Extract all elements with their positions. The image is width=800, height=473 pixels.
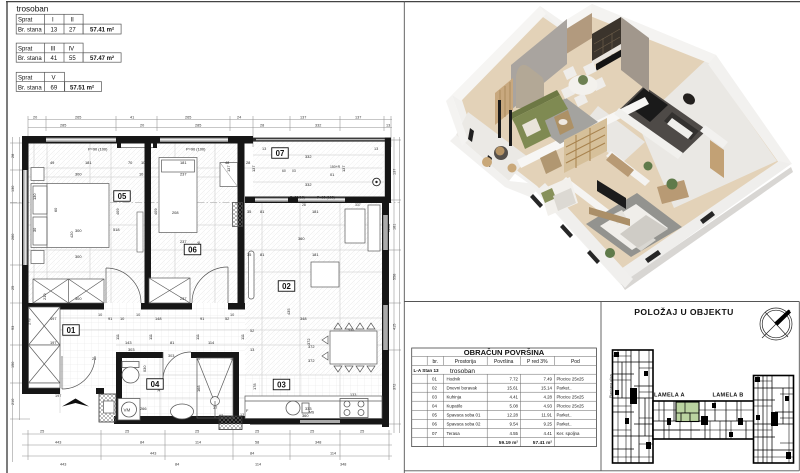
svg-text:208: 208 — [172, 210, 179, 215]
svg-text:Dnevni boravak: Dnevni boravak — [447, 386, 478, 391]
svg-text:25: 25 — [195, 430, 199, 434]
svg-text:60: 60 — [282, 169, 286, 173]
svg-text:MS: MS — [309, 411, 315, 415]
svg-text:35: 35 — [247, 209, 251, 214]
svg-text:IV: IV — [69, 46, 75, 52]
svg-text:111: 111 — [195, 334, 200, 340]
svg-text:415: 415 — [393, 324, 397, 330]
svg-text:11.91: 11.91 — [541, 413, 552, 418]
svg-text:10: 10 — [98, 313, 102, 317]
svg-text:37: 37 — [213, 405, 217, 410]
svg-text:57.51 m²: 57.51 m² — [70, 84, 94, 91]
svg-text:LAMELA A: LAMELA A — [654, 393, 685, 399]
svg-text:4.28: 4.28 — [543, 395, 552, 400]
svg-text:300: 300 — [75, 228, 82, 233]
svg-text:Br. stana: Br. stana — [18, 27, 42, 33]
svg-text:181: 181 — [393, 224, 397, 230]
svg-text:POLOŽAJ U OBJEKTU: POLOŽAJ U OBJEKTU — [634, 306, 733, 317]
svg-text:181: 181 — [312, 209, 319, 214]
svg-text:15.61: 15.61 — [507, 386, 519, 391]
svg-text:303: 303 — [168, 354, 174, 358]
svg-text:4.93: 4.93 — [543, 404, 552, 409]
svg-text:337: 337 — [355, 203, 361, 207]
svg-text:10: 10 — [136, 313, 140, 317]
svg-text:260: 260 — [11, 234, 15, 240]
svg-text:trosoban: trosoban — [450, 368, 475, 375]
svg-text:13: 13 — [374, 147, 378, 151]
svg-text:Plocice 25x25: Plocice 25x25 — [557, 404, 585, 409]
svg-text:91: 91 — [200, 316, 204, 321]
svg-text:300: 300 — [75, 172, 82, 177]
svg-text:52: 52 — [250, 329, 254, 333]
svg-text:266: 266 — [140, 406, 147, 411]
svg-text:372: 372 — [308, 358, 315, 363]
svg-text:300: 300 — [75, 296, 82, 301]
svg-text:03: 03 — [292, 169, 296, 173]
svg-text:07: 07 — [276, 149, 285, 158]
svg-text:03: 03 — [432, 395, 437, 400]
svg-text:04: 04 — [432, 404, 437, 409]
svg-text:10: 10 — [230, 313, 234, 317]
svg-text:7.49: 7.49 — [543, 377, 552, 382]
svg-text:178: 178 — [252, 384, 257, 391]
svg-text:181: 181 — [85, 160, 92, 165]
svg-text:518: 518 — [113, 227, 120, 232]
svg-text:137: 137 — [393, 169, 397, 175]
svg-text:P red 3%: P red 3% — [527, 359, 548, 365]
svg-text:01: 01 — [330, 172, 334, 177]
svg-text:143: 143 — [125, 340, 132, 345]
svg-text:28: 28 — [11, 154, 15, 158]
svg-text:Pod: Pod — [571, 359, 580, 365]
svg-text:trosoban: trosoban — [17, 5, 49, 14]
svg-text:Kupatilo: Kupatilo — [447, 404, 463, 409]
svg-text:Parket..: Parket.. — [557, 413, 572, 418]
svg-text:9.25: 9.25 — [543, 422, 552, 427]
svg-text:Parket..: Parket.. — [557, 422, 572, 427]
svg-text:435: 435 — [286, 309, 291, 316]
svg-text:05: 05 — [432, 413, 437, 418]
svg-text:P=90 (100): P=90 (100) — [186, 147, 206, 152]
svg-text:P=20(10): P=20(10) — [290, 196, 305, 200]
svg-text:13: 13 — [262, 147, 266, 151]
svg-text:69: 69 — [51, 85, 58, 91]
svg-text:P=90 (100): P=90 (100) — [317, 196, 335, 200]
svg-text:114: 114 — [195, 441, 201, 445]
svg-text:348: 348 — [315, 441, 321, 445]
svg-text:15.14: 15.14 — [541, 386, 553, 391]
svg-text:278: 278 — [27, 319, 32, 326]
svg-text:181: 181 — [312, 252, 319, 257]
svg-text:Prostorija: Prostorija — [455, 359, 476, 365]
svg-text:58: 58 — [255, 441, 259, 445]
svg-text:130: 130 — [11, 186, 15, 192]
svg-text:25: 25 — [125, 430, 129, 434]
svg-text:137: 137 — [341, 166, 346, 173]
svg-text:62: 62 — [219, 413, 223, 418]
svg-text:237: 237 — [180, 172, 187, 177]
svg-text:9.54: 9.54 — [509, 422, 518, 427]
svg-text:Sprat: Sprat — [18, 46, 33, 52]
svg-text:13: 13 — [386, 123, 390, 127]
svg-text:Spavaca soba 01: Spavaca soba 01 — [447, 413, 481, 418]
svg-text:Plocice 25x25: Plocice 25x25 — [557, 377, 585, 382]
svg-text:01: 01 — [432, 377, 437, 382]
svg-text:7.72: 7.72 — [509, 377, 518, 382]
svg-text:111: 111 — [148, 334, 153, 340]
svg-text:20: 20 — [140, 123, 144, 127]
svg-text:02: 02 — [432, 386, 437, 391]
svg-text:137: 137 — [300, 116, 306, 120]
svg-text:409: 409 — [153, 209, 158, 216]
svg-text:111: 111 — [115, 334, 120, 340]
svg-text:Spavaca soba 02: Spavaca soba 02 — [447, 422, 481, 427]
svg-text:265: 265 — [75, 116, 81, 120]
svg-text:137: 137 — [251, 166, 256, 173]
svg-text:197: 197 — [50, 340, 57, 345]
svg-text:4.41: 4.41 — [509, 395, 518, 400]
svg-text:443: 443 — [60, 463, 66, 467]
svg-text:Sprat: Sprat — [18, 18, 33, 24]
svg-text:030: 030 — [142, 365, 147, 372]
svg-text:12.28: 12.28 — [507, 413, 519, 418]
svg-text:OBRAČUN POVRŠINA: OBRAČUN POVRŠINA — [464, 348, 545, 357]
svg-text:57.41 m²: 57.41 m² — [90, 26, 114, 33]
svg-text:114: 114 — [255, 463, 261, 467]
svg-text:219: 219 — [42, 294, 47, 301]
svg-text:81: 81 — [260, 209, 264, 214]
svg-text:360: 360 — [298, 236, 305, 241]
svg-text:13: 13 — [250, 347, 254, 352]
svg-text:81: 81 — [170, 340, 174, 345]
svg-text:Kuhinja: Kuhinja — [447, 395, 462, 400]
svg-text:06: 06 — [188, 245, 197, 254]
svg-text:03: 03 — [277, 380, 286, 389]
svg-text:285: 285 — [60, 123, 66, 127]
svg-text:55: 55 — [69, 56, 76, 62]
svg-text:06: 06 — [432, 422, 437, 427]
svg-text:57.47 m²: 57.47 m² — [90, 55, 114, 62]
svg-text:348: 348 — [300, 316, 307, 321]
svg-text:130: 130 — [32, 193, 37, 200]
svg-text:84: 84 — [175, 463, 179, 467]
svg-text:332: 332 — [315, 123, 321, 127]
svg-text:III: III — [51, 46, 56, 52]
svg-text:558: 558 — [393, 274, 397, 280]
svg-text:4.41: 4.41 — [543, 431, 552, 436]
svg-text:07: 07 — [432, 431, 437, 436]
svg-text:114: 114 — [330, 452, 336, 456]
svg-text:Plocice 25x25: Plocice 25x25 — [557, 395, 585, 400]
svg-text:25: 25 — [92, 357, 96, 361]
svg-text:443: 443 — [150, 452, 156, 456]
svg-text:332: 332 — [305, 182, 312, 187]
svg-text:48: 48 — [225, 160, 229, 165]
svg-text:303: 303 — [128, 347, 135, 352]
svg-text:348: 348 — [340, 463, 346, 467]
svg-text:420: 420 — [69, 231, 74, 238]
svg-text:25: 25 — [11, 286, 15, 290]
svg-text:25: 25 — [360, 430, 364, 434]
svg-text:Ker. spoljna: Ker. spoljna — [557, 431, 581, 436]
svg-text:Sprat: Sprat — [18, 76, 33, 82]
svg-text:137: 137 — [226, 166, 231, 173]
svg-text:05: 05 — [118, 192, 127, 201]
svg-text:VM: VM — [124, 408, 131, 413]
svg-text:332: 332 — [305, 154, 312, 159]
svg-text:300: 300 — [75, 254, 82, 259]
svg-text:5.08: 5.08 — [509, 404, 518, 409]
svg-text:01: 01 — [67, 326, 76, 335]
svg-text:41: 41 — [130, 116, 134, 120]
svg-text:197: 197 — [50, 316, 57, 321]
svg-text:28: 28 — [246, 160, 250, 165]
svg-text:181: 181 — [180, 160, 187, 165]
svg-text:84: 84 — [140, 441, 144, 445]
svg-text:210: 210 — [11, 399, 15, 405]
svg-text:Površina: Površina — [494, 359, 514, 365]
svg-text:27: 27 — [69, 27, 76, 33]
svg-text:114: 114 — [208, 340, 215, 345]
svg-text:P=90 (100): P=90 (100) — [88, 147, 108, 152]
svg-text:93: 93 — [11, 326, 15, 330]
svg-text:4.55: 4.55 — [509, 431, 518, 436]
svg-text:Br. stana: Br. stana — [18, 85, 42, 91]
svg-text:59.19 m²: 59.19 m² — [499, 440, 519, 446]
svg-text:168: 168 — [196, 386, 201, 393]
svg-text:br.: br. — [433, 359, 439, 365]
svg-text:137: 137 — [355, 116, 361, 120]
svg-text:57.41 m²: 57.41 m² — [533, 440, 553, 446]
svg-text:Br. stana: Br. stana — [18, 56, 42, 62]
svg-text:197: 197 — [55, 394, 61, 398]
svg-text:111: 111 — [240, 334, 245, 340]
svg-text:49: 49 — [50, 160, 54, 165]
svg-text:409: 409 — [115, 209, 120, 216]
svg-text:443: 443 — [55, 441, 61, 445]
svg-text:Terasa: Terasa — [447, 431, 461, 436]
svg-text:25: 25 — [40, 430, 44, 434]
svg-text:04: 04 — [151, 380, 160, 389]
svg-text:28: 28 — [260, 123, 264, 127]
svg-text:02: 02 — [282, 282, 291, 291]
svg-text:13: 13 — [51, 27, 58, 33]
svg-text:52: 52 — [225, 316, 229, 321]
svg-text:360: 360 — [302, 413, 309, 418]
svg-text:Parket..: Parket.. — [557, 386, 572, 391]
svg-text:25: 25 — [310, 430, 314, 434]
svg-text:150: 150 — [11, 362, 15, 368]
svg-text:372: 372 — [393, 384, 397, 390]
svg-text:84: 84 — [250, 452, 254, 456]
svg-text:237: 237 — [180, 296, 187, 301]
svg-text:II: II — [71, 18, 75, 24]
svg-text:237: 237 — [180, 239, 187, 244]
svg-text:LAMELA B: LAMELA B — [713, 393, 744, 399]
svg-text:28: 28 — [302, 203, 306, 207]
svg-text:25: 25 — [255, 430, 259, 434]
svg-text:41: 41 — [51, 56, 58, 62]
svg-text:285: 285 — [195, 123, 201, 127]
svg-text:81: 81 — [260, 252, 264, 257]
svg-text:24: 24 — [237, 116, 241, 120]
svg-text:372: 372 — [306, 339, 311, 346]
svg-text:20: 20 — [33, 116, 37, 120]
svg-text:265: 265 — [185, 116, 191, 120]
svg-text:Hodnik: Hodnik — [447, 377, 461, 382]
svg-text:150+R: 150+R — [330, 165, 341, 169]
svg-text:148: 148 — [155, 316, 162, 321]
svg-text:91: 91 — [108, 316, 112, 321]
svg-text:V: V — [52, 76, 56, 82]
svg-text:35: 35 — [247, 252, 251, 257]
svg-text:L-A Stan 13: L-A Stan 13 — [414, 368, 440, 373]
